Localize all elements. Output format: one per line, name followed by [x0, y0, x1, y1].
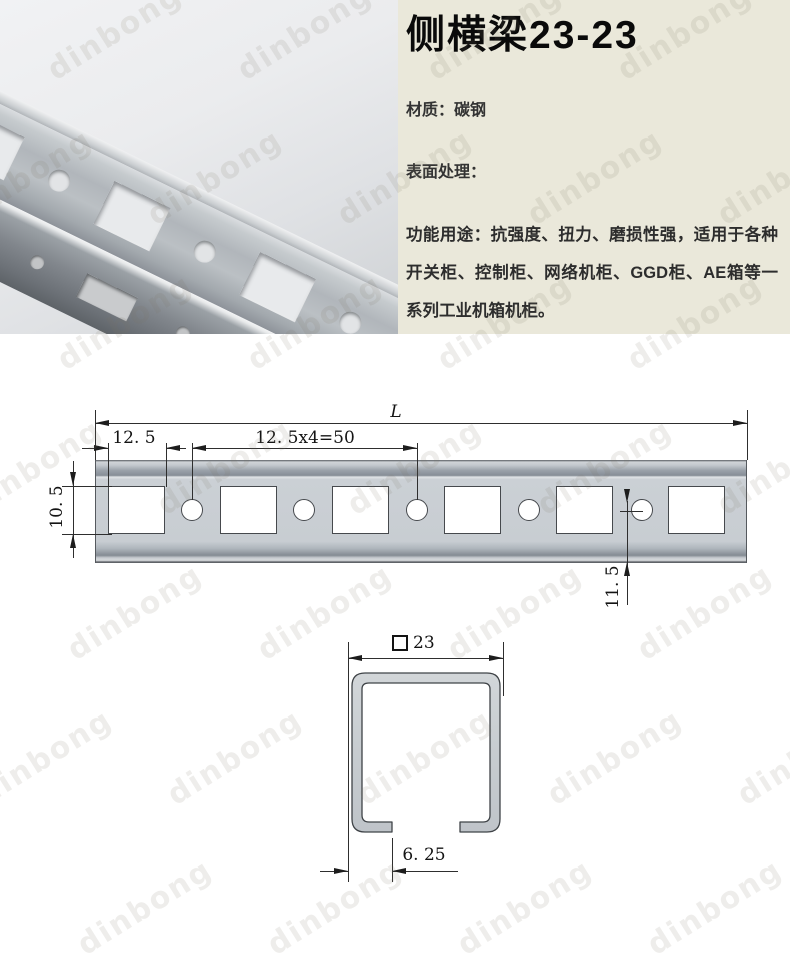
dim-label-hole-pitch: 12. 5x4=50	[235, 428, 375, 448]
watermark-text: dinbong	[728, 700, 790, 814]
material-text: 材质：碳钢	[406, 96, 486, 120]
dimension-arrow	[392, 868, 406, 874]
watermark-text: dinbong	[448, 850, 602, 954]
info-panel: 侧横梁23-23 材质：碳钢 表面处理： 功能用途：抗强度、扭力、磨损性强，适用…	[398, 0, 790, 334]
dimension-arrow	[489, 655, 503, 661]
square-hole	[220, 486, 277, 534]
section-size-value: 23	[413, 633, 435, 653]
square-hole	[108, 486, 165, 534]
square-hole	[385, 323, 398, 334]
square-hole	[556, 486, 613, 534]
round-hole	[173, 324, 192, 334]
square-hole	[444, 486, 501, 534]
dimension-arrow	[95, 420, 109, 426]
dim-label-hole-height: 10. 5	[47, 472, 67, 542]
extension-line	[108, 443, 109, 487]
c-profile-shape	[345, 668, 505, 838]
round-hole	[518, 499, 540, 521]
extension-line	[747, 410, 748, 460]
photo-edge-shadow	[390, 0, 398, 300]
square-hole	[668, 486, 725, 534]
extension-line	[192, 443, 193, 500]
round-hole	[44, 166, 73, 195]
dimension-arrow	[192, 445, 206, 451]
watermark-text: dinbong	[258, 850, 412, 954]
watermark-text: dinbong	[158, 700, 312, 814]
metal-strip	[0, 76, 398, 334]
product-photo	[0, 0, 398, 334]
dimension-line	[192, 448, 417, 449]
round-hole	[190, 237, 219, 266]
round-hole	[336, 308, 365, 334]
dim-label-hole-to-edge: 11. 5	[603, 552, 623, 622]
dim-label-length: L	[374, 402, 418, 422]
watermark-text: dinbong	[638, 850, 790, 954]
dimension-arrow	[403, 445, 417, 451]
watermark-text: dinbong	[538, 700, 692, 814]
square-hole	[0, 110, 25, 180]
square-hole	[332, 486, 389, 534]
dimension-arrow	[70, 534, 76, 548]
watermark-text: dinbong	[58, 555, 212, 669]
dimension-arrow	[733, 420, 747, 426]
extension-line	[62, 486, 112, 487]
dimension-arrow	[348, 655, 362, 661]
extension-line	[95, 410, 96, 460]
square-hole	[76, 273, 138, 321]
dimension-arrow	[624, 562, 630, 576]
watermark-text: dinbong	[248, 555, 402, 669]
product-page: 侧横梁23-23 材质：碳钢 表面处理： 功能用途：抗强度、扭力、磨损性强，适用…	[0, 0, 790, 954]
round-hole	[293, 499, 315, 521]
dimension-line	[95, 423, 747, 424]
square-hole	[239, 252, 316, 322]
watermark-text: dinbong	[0, 700, 122, 814]
watermark-text: dinbong	[438, 555, 592, 669]
dimension-line	[627, 501, 628, 605]
extension-line	[348, 642, 349, 882]
center-tick	[620, 511, 643, 512]
extension-line	[417, 443, 418, 500]
extension-line	[503, 642, 504, 696]
dimension-line	[348, 658, 503, 659]
dimension-arrow	[334, 868, 348, 874]
round-hole	[406, 499, 428, 521]
round-hole	[631, 499, 653, 521]
watermark-text: dinbong	[628, 555, 782, 669]
watermark-text: dinbong	[68, 850, 222, 954]
dimension-arrow	[70, 472, 76, 486]
square-hole	[94, 181, 171, 251]
round-hole	[28, 253, 47, 272]
dimension-arrow	[624, 489, 630, 503]
dim-label-lip-width: 6. 25	[392, 845, 456, 865]
dimension-arrow	[166, 445, 180, 451]
round-hole	[181, 499, 203, 521]
usage-text: 功能用途：抗强度、扭力、磨损性强，适用于各种开关柜、控制柜、网络机柜、GGD柜、…	[406, 216, 778, 330]
surface-treatment-text: 表面处理：	[406, 158, 486, 182]
square-symbol-icon	[392, 635, 408, 651]
dim-label-section-size: 23	[392, 633, 435, 653]
product-title: 侧横梁23-23	[406, 4, 639, 60]
dim-label-end-offset: 12. 5	[104, 428, 164, 448]
